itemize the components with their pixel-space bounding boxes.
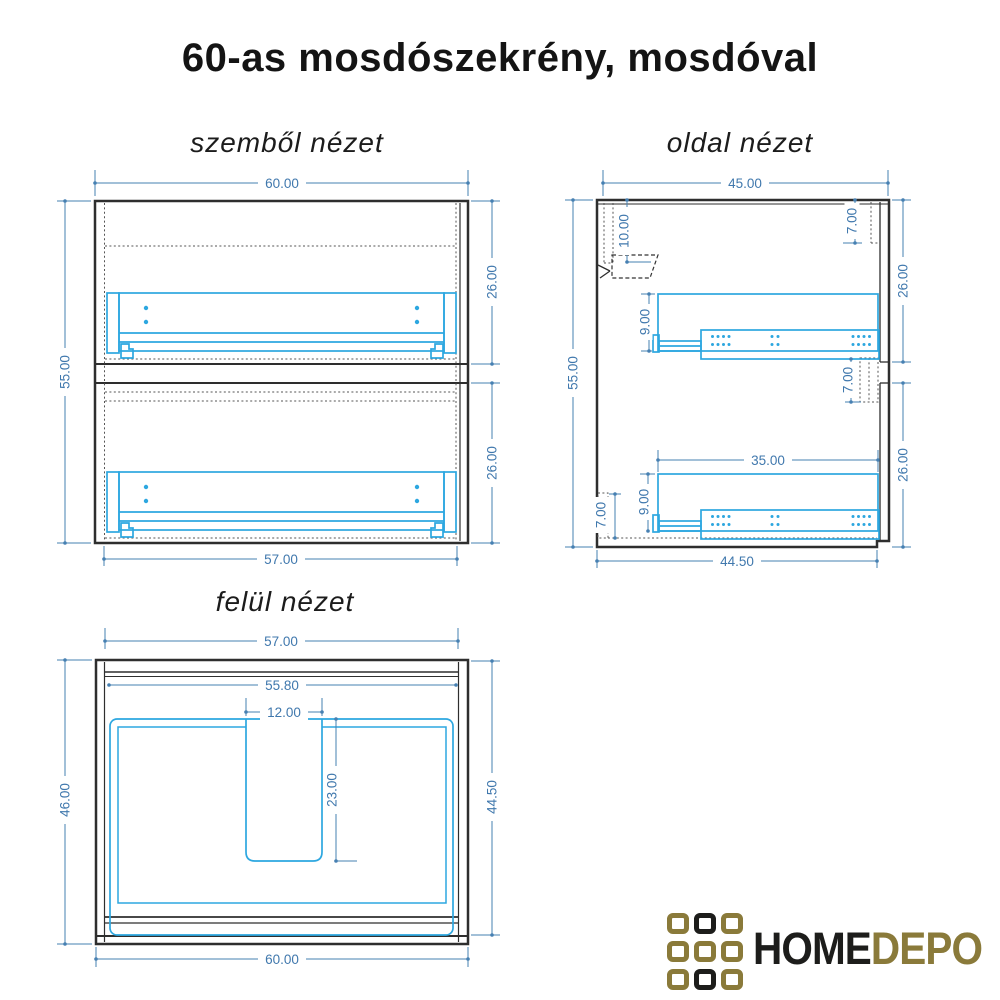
top-view-drawing: 57.00 55.80 12.00 23.00 46.00 44.50 60.0… <box>57 628 500 967</box>
dim-front-width-top: 60.00 <box>265 176 299 191</box>
dim-side-depth-bottom: 44.50 <box>720 554 754 569</box>
dim-side-upper-slide-height: 9.00 <box>638 309 653 335</box>
dim-front-upper-drawer: 26.00 <box>485 265 500 299</box>
logo-word-home: HOME <box>753 923 871 974</box>
dim-side-depth-top: 45.00 <box>728 176 762 191</box>
drawing-canvas: 60.00 55.00 26.00 26.00 57.00 <box>0 0 1000 1000</box>
logo-square-dark <box>694 969 716 990</box>
side-view-drawing: 45.00 10.00 7.00 26.00 9.00 7.00 <box>565 170 911 569</box>
dim-front-width-bottom: 57.00 <box>264 552 298 567</box>
logo-square-gold <box>667 913 689 934</box>
logo-word-depo: DEPO <box>871 923 982 974</box>
dim-front-height-left: 55.00 <box>58 355 73 389</box>
front-view-drawing: 60.00 55.00 26.00 26.00 57.00 <box>57 170 500 567</box>
dim-top-depth-right: 44.50 <box>485 780 500 814</box>
logo-square-dark <box>694 913 716 934</box>
technical-drawing-page: 60-as mosdószekrény, mosdóval szemből né… <box>0 0 1000 1000</box>
homedepo-logo-grid <box>667 913 743 990</box>
dim-top-width-top: 57.00 <box>264 634 298 649</box>
dim-side-bottom-left-inset: 7.00 <box>594 502 609 528</box>
logo-square-gold <box>694 941 716 962</box>
dim-side-lower-slide-height: 9.00 <box>637 489 652 515</box>
dim-side-hanger-offset: 10.00 <box>617 214 632 248</box>
dim-top-depth-left: 46.00 <box>58 783 73 817</box>
dim-top-cutout-depth: 23.00 <box>325 773 340 807</box>
dim-side-mid-inset: 7.00 <box>841 367 856 393</box>
logo-square-gold <box>721 913 743 934</box>
logo-square-gold <box>667 969 689 990</box>
homedepo-logo-text: HOMEDEPO <box>753 926 982 971</box>
dim-side-slide-length: 35.00 <box>751 453 785 468</box>
dim-side-upper-section: 26.00 <box>896 264 911 298</box>
dim-side-top-right-inset: 7.00 <box>845 208 860 234</box>
dim-side-height-left: 55.00 <box>566 356 581 390</box>
dim-top-cutout-width: 12.00 <box>267 705 301 720</box>
dim-front-lower-drawer: 26.00 <box>485 446 500 480</box>
logo-square-gold <box>721 941 743 962</box>
logo-square-gold <box>721 969 743 990</box>
dim-top-inner-width: 55.80 <box>265 678 299 693</box>
logo-square-gold <box>667 941 689 962</box>
dim-top-width-bottom: 60.00 <box>265 952 299 967</box>
dim-side-lower-section: 26.00 <box>896 448 911 482</box>
